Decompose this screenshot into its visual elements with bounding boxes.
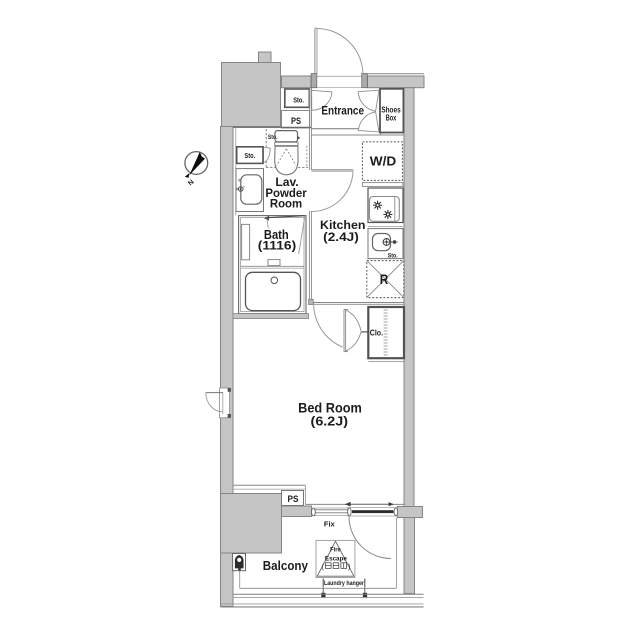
- svg-text:Escape: Escape: [325, 555, 347, 562]
- svg-text:(2.4J): (2.4J): [323, 232, 359, 244]
- svg-text:Sto.: Sto.: [388, 252, 398, 259]
- svg-text:Sto.: Sto.: [244, 151, 255, 160]
- svg-text:(6.2J): (6.2J): [311, 413, 349, 428]
- svg-text:Sto.: Sto.: [268, 134, 278, 141]
- svg-text:Box: Box: [386, 114, 397, 123]
- svg-text:W/D: W/D: [370, 154, 397, 168]
- svg-text:(1116): (1116): [258, 239, 296, 253]
- svg-text:Balcony: Balcony: [263, 558, 309, 573]
- svg-text:PS: PS: [291, 116, 301, 126]
- svg-text:R: R: [380, 271, 389, 287]
- svg-text:Entrance: Entrance: [321, 106, 364, 118]
- svg-text:Kitchen: Kitchen: [320, 218, 365, 232]
- svg-text:Fix: Fix: [324, 519, 335, 528]
- svg-text:Fire: Fire: [330, 547, 341, 554]
- svg-text:): ): [348, 564, 350, 571]
- svg-text:Room: Room: [270, 197, 302, 210]
- svg-text:Laundry hanger: Laundry hanger: [324, 581, 365, 587]
- svg-text:PS: PS: [288, 494, 299, 505]
- svg-text:Sto.: Sto.: [293, 95, 304, 104]
- svg-text:Clo.: Clo.: [370, 328, 383, 337]
